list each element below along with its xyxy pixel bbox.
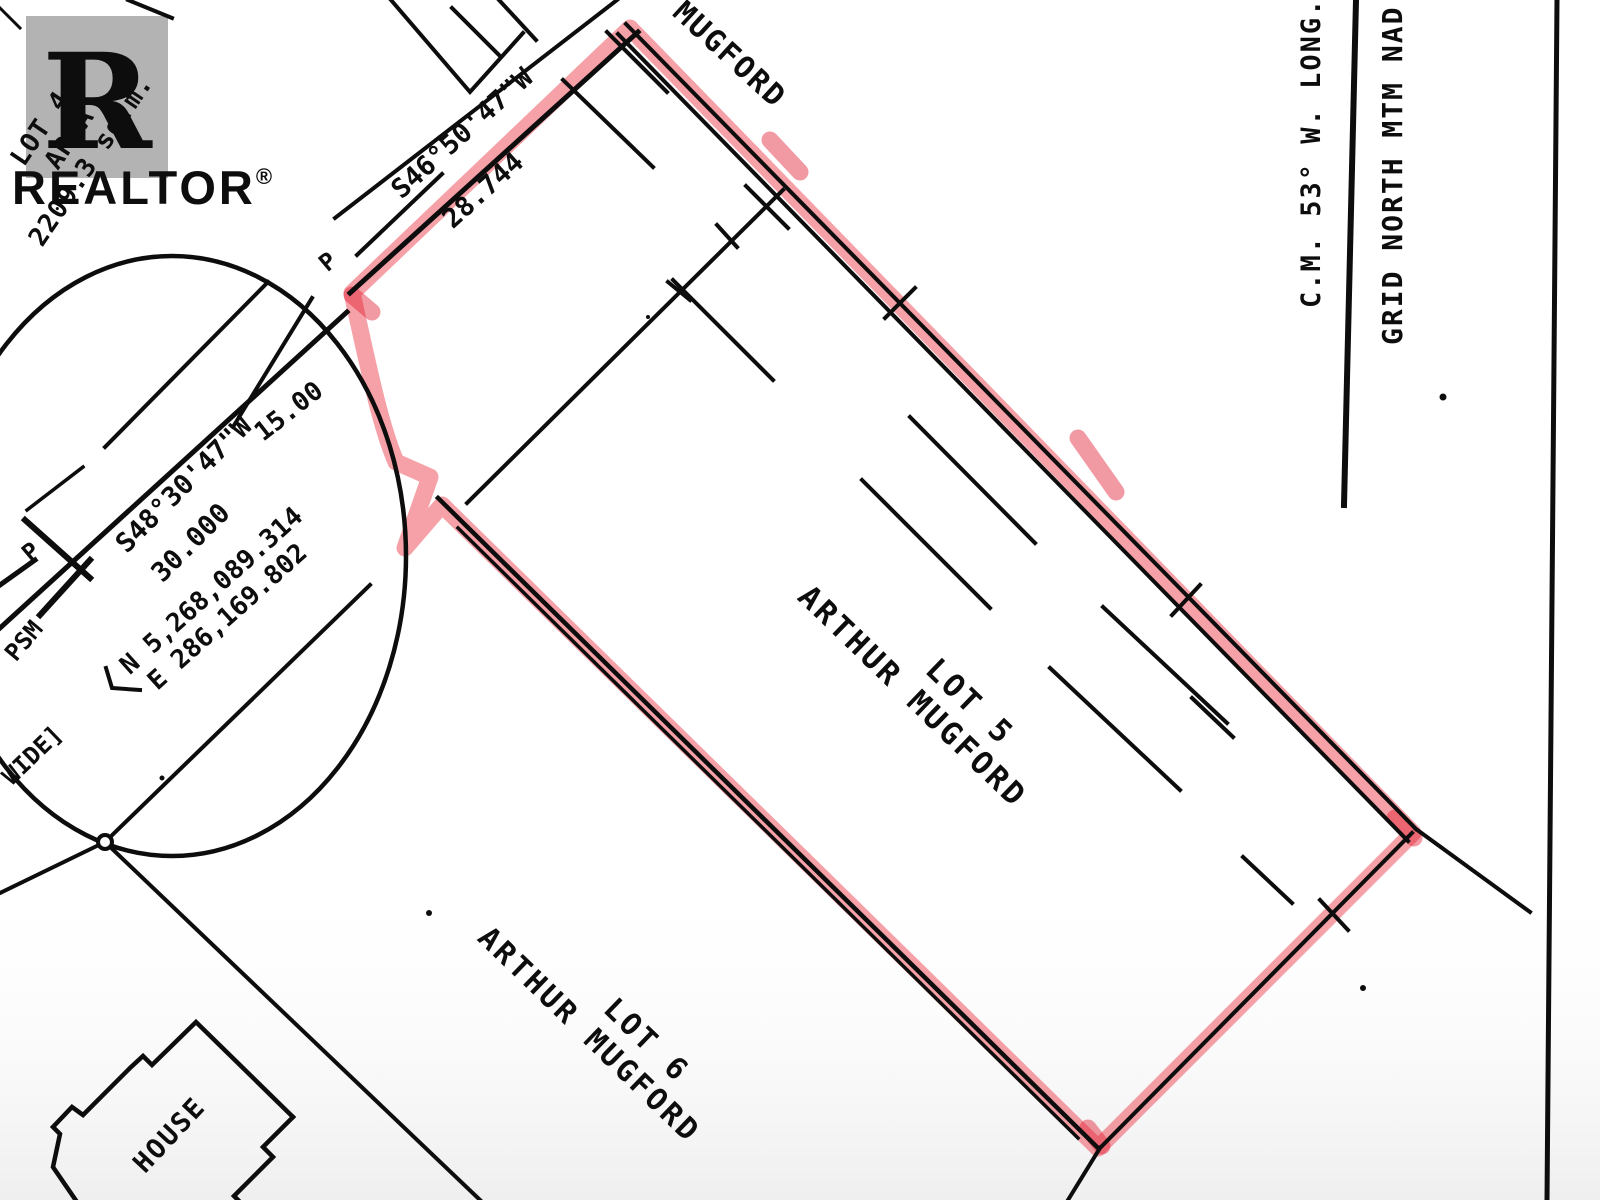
cm-longitude-label: C.M. 53° W. LONG. bbox=[1296, 0, 1327, 308]
monument-circle bbox=[98, 835, 112, 849]
survey-plan-svg: R REALTOR® bbox=[0, 0, 1600, 1200]
grid-north-label: GRID NORTH MTM NAD bbox=[1376, 6, 1409, 345]
survey-plan-page: R REALTOR® bbox=[0, 0, 1600, 1200]
